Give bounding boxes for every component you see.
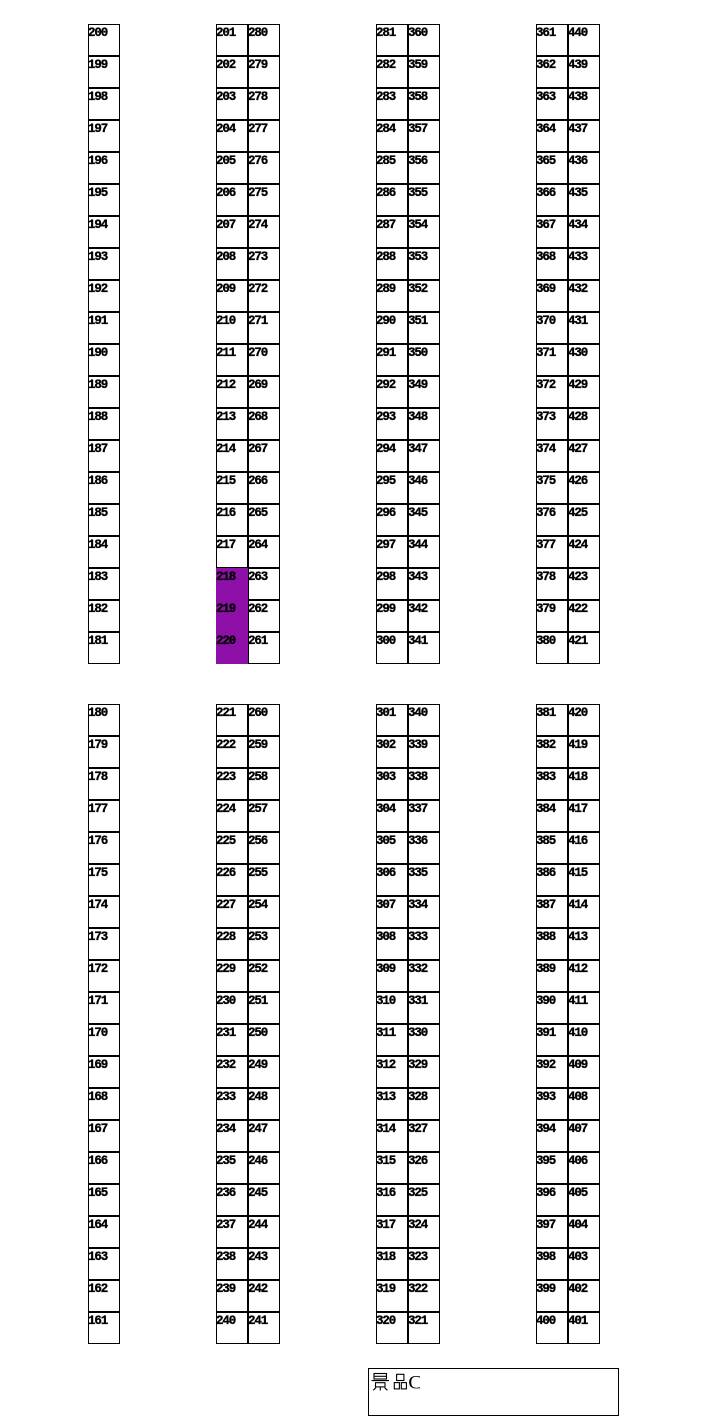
- svg-text:C: C: [408, 1372, 420, 1393]
